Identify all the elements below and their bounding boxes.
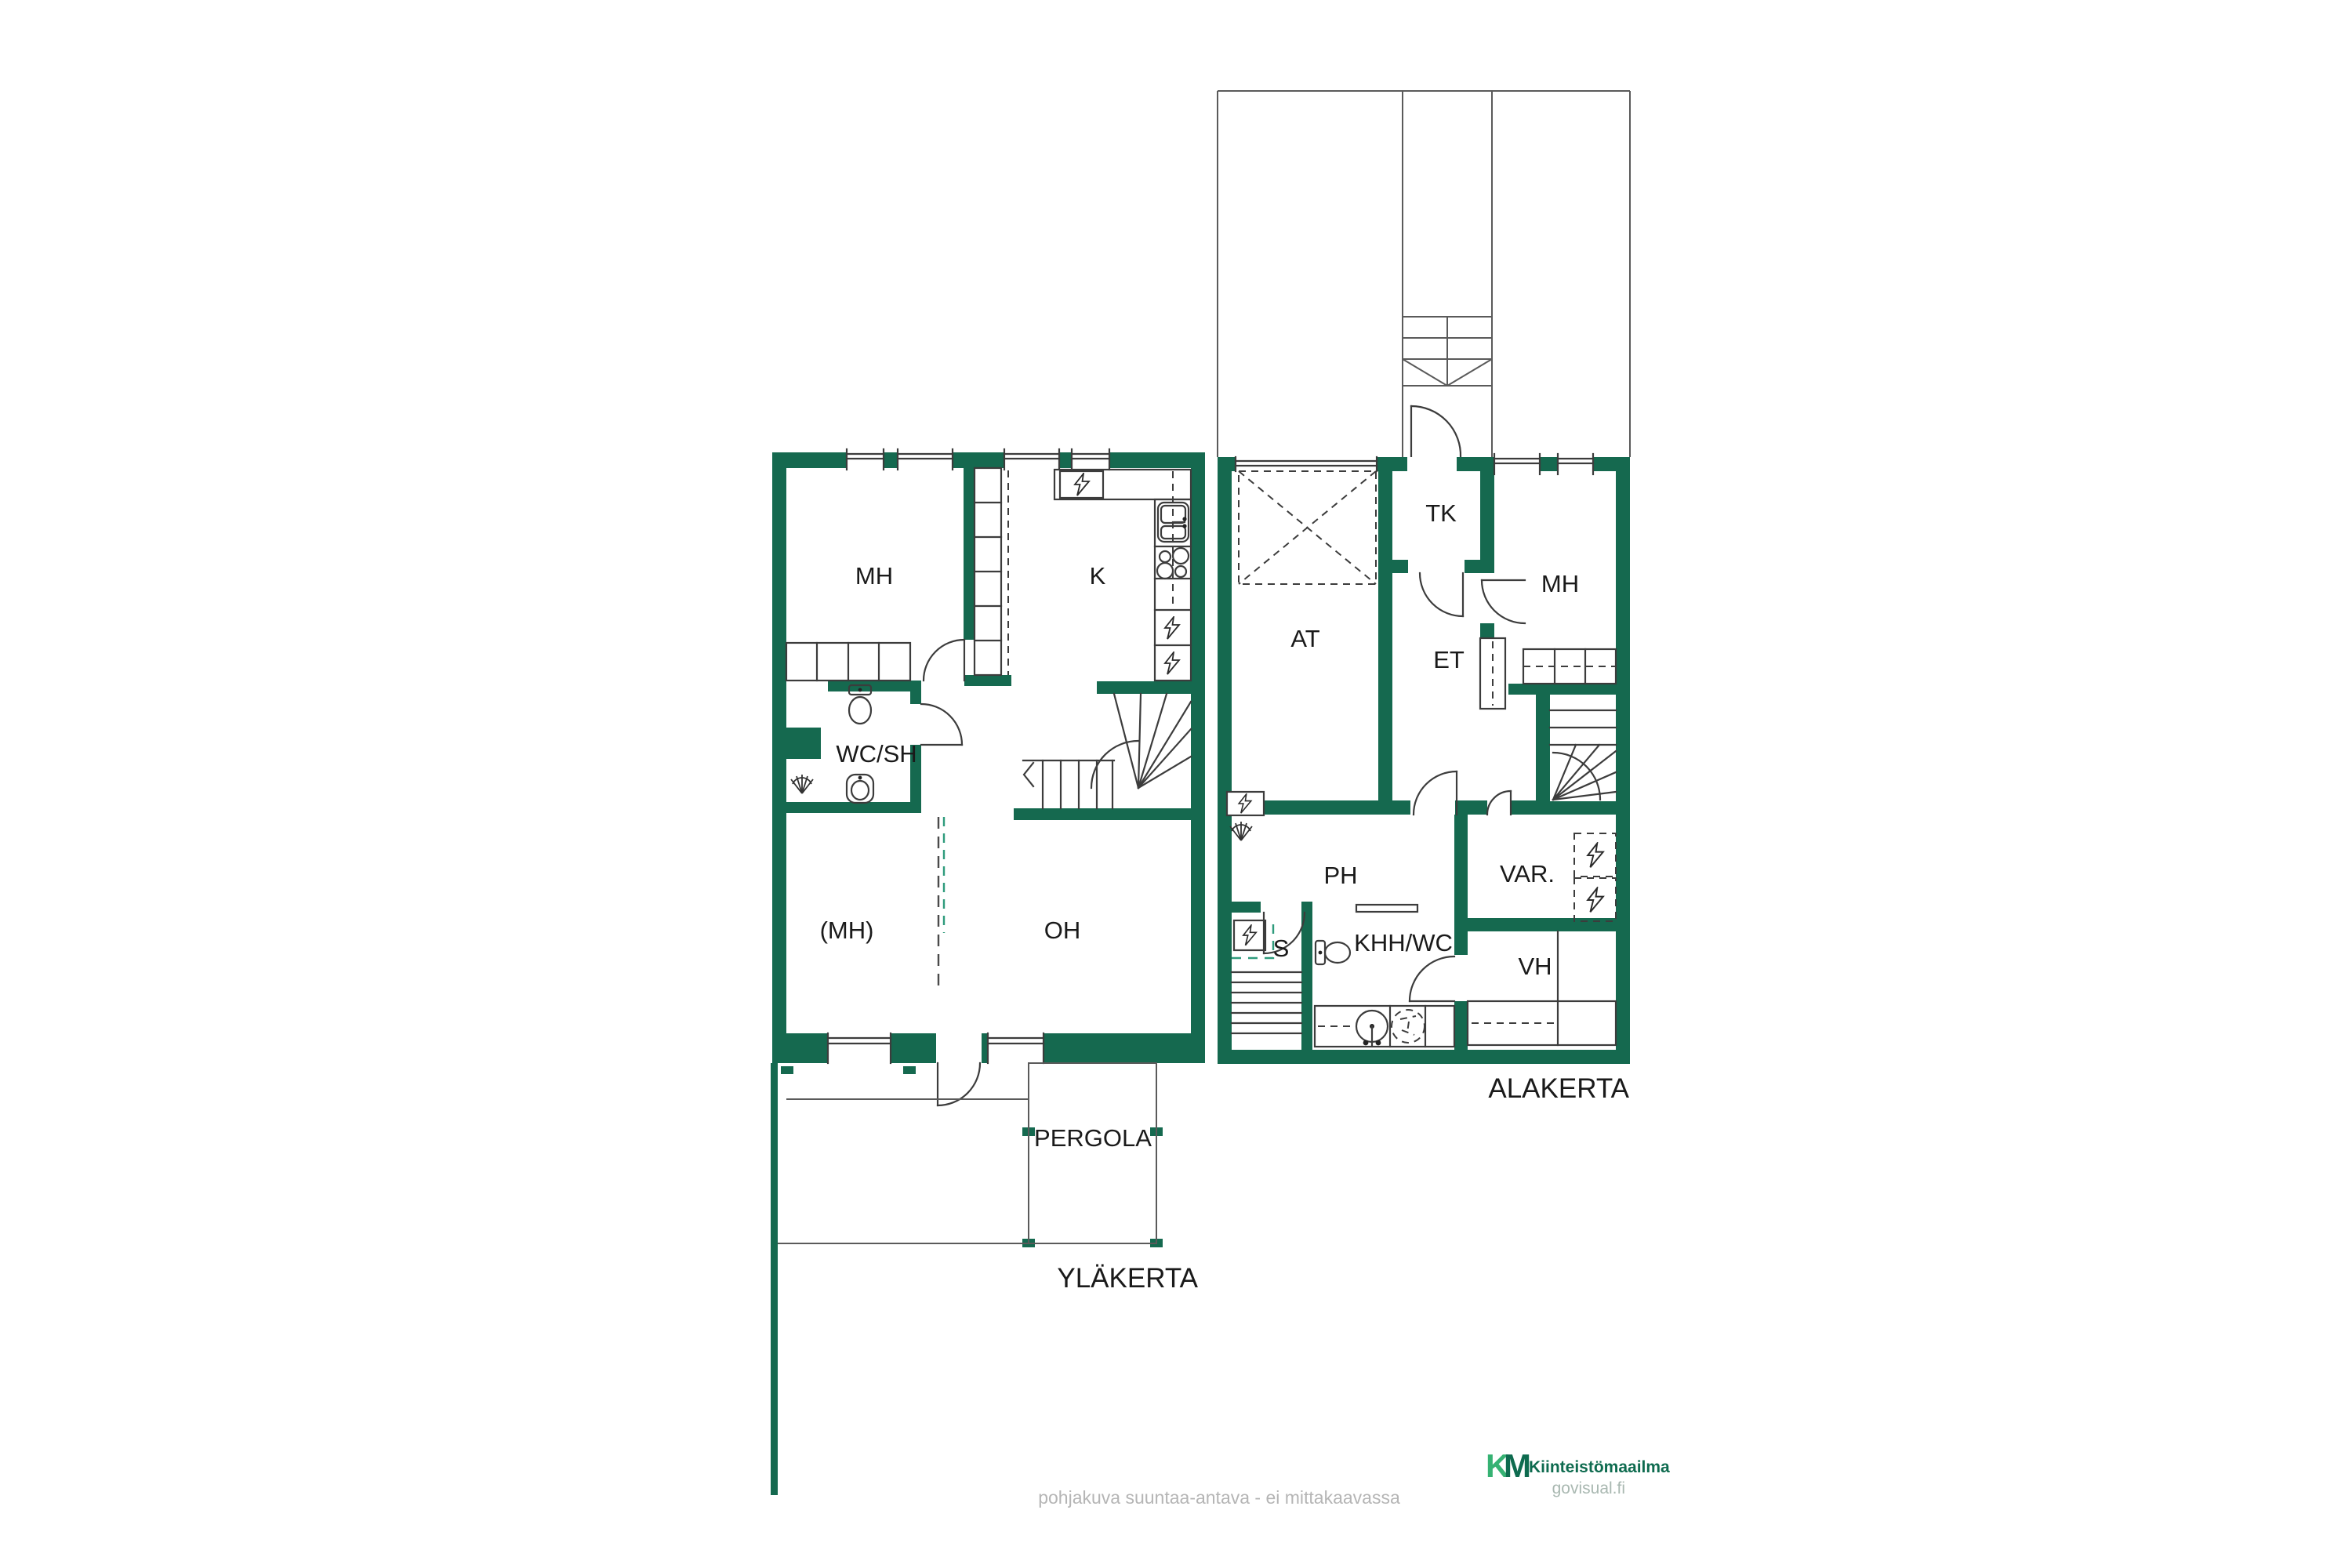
- yard-outline: [1218, 91, 1630, 457]
- electrical-icon: [1588, 844, 1603, 868]
- upper-walls: [771, 452, 1205, 1495]
- floorplan-page: MH K WC/SH (MH) OH PERGOLA YLÄKERTA: [0, 0, 2352, 1568]
- vh-closet: [1468, 931, 1616, 1045]
- kitchen-counter: [1054, 470, 1191, 681]
- door-arc: [1420, 573, 1463, 616]
- room-label-pergola: PERGOLA: [1034, 1124, 1152, 1152]
- electrical-icon: [1588, 888, 1603, 913]
- room-label-tk: TK: [1425, 499, 1457, 527]
- room-label-s: S: [1273, 935, 1290, 962]
- window: [988, 1033, 1044, 1063]
- floor-label-ylakerta: YLÄKERTA: [1057, 1263, 1198, 1294]
- room-label-et: ET: [1433, 646, 1465, 673]
- toilet-icon: [1316, 941, 1350, 964]
- sliding-door: [938, 817, 944, 986]
- sauna-benches-icon: [1232, 972, 1301, 1033]
- floor-drain-icon: [1392, 1010, 1425, 1043]
- staircase-icon: [1550, 710, 1616, 800]
- sauna-fittings: [1232, 917, 1301, 1033]
- room-label-mh: MH: [855, 562, 893, 590]
- room-label-at: AT: [1290, 625, 1319, 652]
- electrical-cabinets: [1574, 833, 1616, 921]
- upper-floor-plan: MH K WC/SH (MH) OH PERGOLA YLÄKERTA: [771, 449, 1205, 1495]
- electrical-panel: [1227, 792, 1264, 815]
- room-label-k: K: [1090, 562, 1106, 590]
- door-opening: [1454, 955, 1468, 1001]
- door-arc: [921, 704, 962, 745]
- washing-machine-icon: [1356, 1011, 1388, 1045]
- floor-label-alakerta: ALAKERTA: [1488, 1073, 1629, 1104]
- washbasin-icon: [847, 775, 873, 803]
- window: [828, 1033, 891, 1063]
- cabinet-icon: [975, 468, 1008, 675]
- electrical-icon: [1075, 474, 1089, 495]
- watermark-text: govisual.fi: [1552, 1479, 1625, 1497]
- electrical-icon: [1165, 617, 1179, 639]
- room-label-var: VAR.: [1500, 860, 1555, 887]
- window: [1072, 449, 1109, 470]
- door-opening: [1407, 457, 1457, 471]
- disclaimer-text: pohjakuva suuntaa-antava - ei mittakaava…: [1038, 1487, 1400, 1508]
- door-opening: [1410, 800, 1455, 815]
- window: [1004, 449, 1059, 470]
- staircase-icon: [1023, 694, 1191, 808]
- sauna-stove-icon: [1232, 917, 1273, 958]
- wardrobe-icon: [1523, 649, 1616, 684]
- khh-fittings: [1315, 905, 1454, 1047]
- garage-door-opening: [1236, 457, 1377, 471]
- terrace-outline: [778, 1063, 1156, 1243]
- door-arc: [1411, 406, 1461, 457]
- brand-name: Kiinteistömaailma: [1529, 1458, 1670, 1476]
- logo-m-glyph: M: [1504, 1447, 1531, 1484]
- shower-icon: [1230, 822, 1252, 840]
- km-logo: K M Kiinteistömaailma govisual.fi: [1486, 1447, 1670, 1497]
- room-label-ph: PH: [1323, 862, 1357, 889]
- room-label-mh-optional: (MH): [820, 916, 874, 944]
- room-label-vh: VH: [1518, 953, 1552, 980]
- room-label-wcsh: WC/SH: [836, 740, 916, 768]
- ceiling-opening-icon: [1239, 471, 1376, 584]
- window: [1494, 454, 1540, 474]
- door-arc: [1410, 956, 1454, 1001]
- door-arc: [924, 640, 964, 681]
- lower-floor-plan: AT TK MH ET PH VAR. S KHH/WC VH ALAKERTA: [1218, 91, 1630, 1104]
- closet-icon: [1480, 638, 1505, 709]
- electrical-icon: [1165, 652, 1179, 674]
- footer: pohjakuva suuntaa-antava - ei mittakaava…: [1038, 1447, 1670, 1508]
- room-label-oh: OH: [1044, 916, 1081, 944]
- room-label-khhwc: KHH/WC: [1354, 929, 1453, 956]
- wardrobe-icon: [786, 643, 910, 681]
- window: [1558, 454, 1593, 474]
- exterior-steps-icon: [1403, 317, 1492, 386]
- door-arc: [1482, 580, 1525, 623]
- window: [898, 449, 953, 470]
- shower-icon: [791, 775, 813, 793]
- floorplan-drawing: MH K WC/SH (MH) OH PERGOLA YLÄKERTA: [0, 0, 2352, 1568]
- room-label-mh: MH: [1541, 570, 1579, 597]
- upper-doors: [921, 640, 964, 745]
- window: [847, 449, 884, 470]
- entry-door: [936, 1033, 982, 1105]
- shelf-icon: [1356, 905, 1417, 912]
